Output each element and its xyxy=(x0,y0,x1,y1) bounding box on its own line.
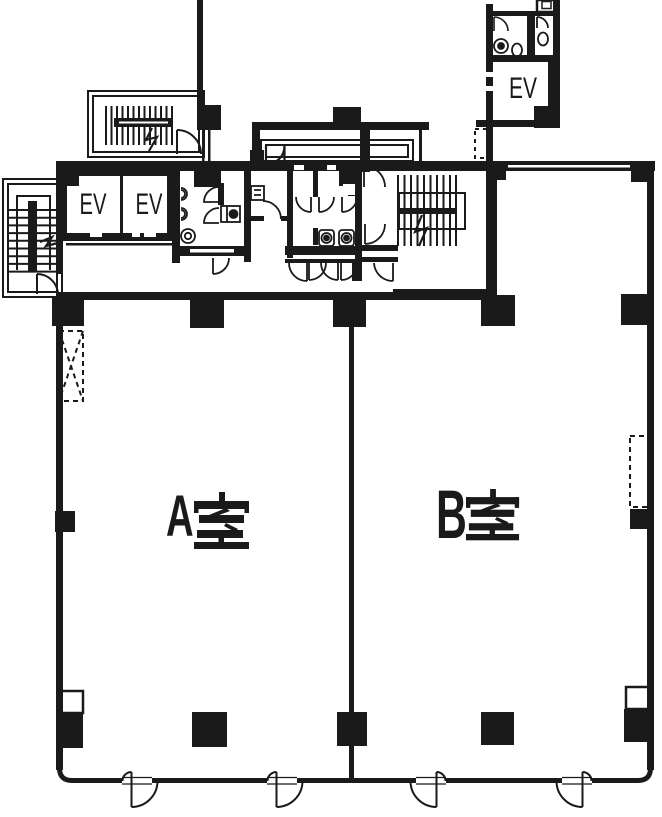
svg-text:EV: EV xyxy=(509,72,537,105)
svg-text:B: B xyxy=(436,477,467,554)
svg-text:EV: EV xyxy=(80,188,107,221)
svg-text:A: A xyxy=(166,485,194,549)
svg-text:EV: EV xyxy=(136,188,163,221)
